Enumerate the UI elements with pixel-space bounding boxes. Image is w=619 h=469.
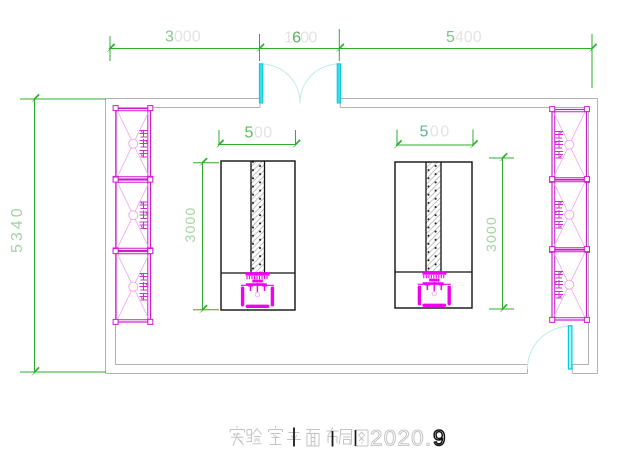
svg-text:2020.: 2020.: [370, 426, 432, 451]
svg-text:3000: 3000: [165, 29, 201, 46]
svg-text:1600: 1600: [284, 30, 317, 47]
svg-text:3000: 3000: [483, 216, 499, 252]
svg-text:5340: 5340: [9, 205, 26, 253]
svg-text:3000: 3000: [182, 207, 198, 243]
svg-text:500: 500: [245, 125, 273, 142]
svg-text:9: 9: [433, 426, 446, 451]
svg-text:5400: 5400: [446, 29, 482, 46]
svg-text:500: 500: [420, 124, 451, 141]
